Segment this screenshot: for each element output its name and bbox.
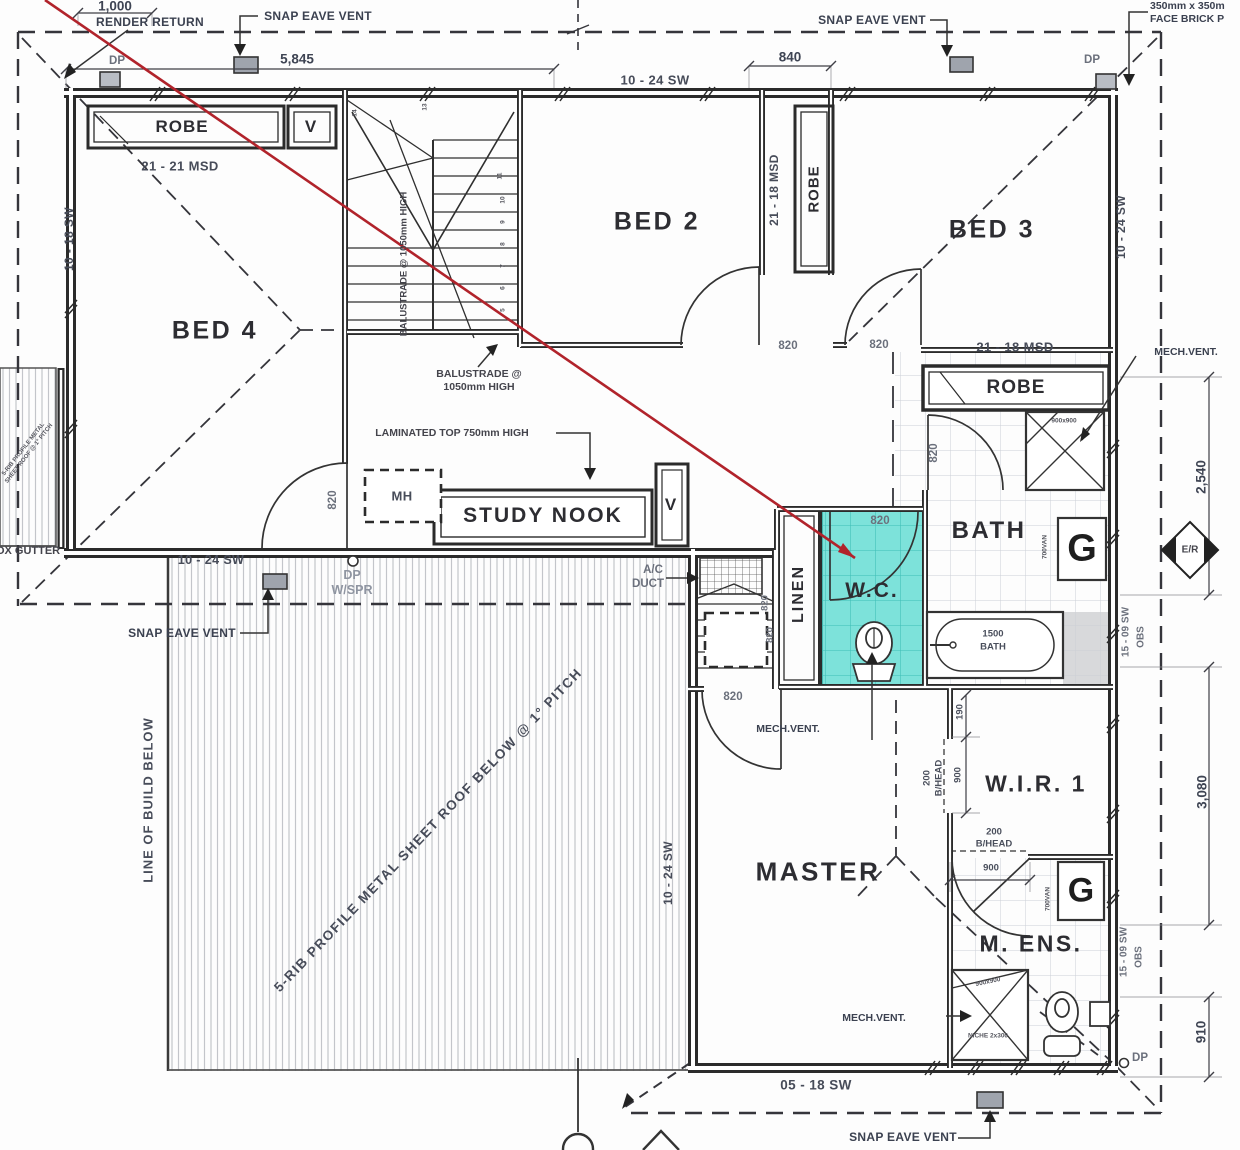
dim-910: 910	[1194, 1021, 1209, 1044]
wir1-label: W.I.R. 1	[985, 771, 1087, 798]
dim-3080: 3,080	[1195, 775, 1210, 809]
obs-label-1: OBS	[1136, 626, 1147, 648]
stair-number-6: 6	[500, 286, 507, 290]
bed4-label: BED 4	[172, 317, 258, 346]
dim-1000: 1,000	[98, 0, 132, 14]
code-15-09-sw-1: 15 - 09 SW	[1121, 607, 1132, 657]
door-820-2: 820	[869, 339, 888, 351]
stair-number-9: 9	[500, 220, 507, 224]
dp-label-2: DP	[1084, 54, 1100, 66]
stair-number-14: 14	[352, 109, 359, 116]
niche-label: NICHE 2x300	[968, 1033, 1008, 1040]
bed2-label: BED 2	[614, 208, 700, 237]
ac-duct-label: DUCT	[632, 578, 664, 590]
code-10-24-sw-right: 10 - 24 SW	[1114, 195, 1128, 259]
face-brick-note-line2: FACE BRICK P	[1150, 13, 1224, 25]
code-05-18-sw: 05 - 18 SW	[780, 1078, 852, 1093]
bhead-label-v: B/HEAD	[934, 760, 945, 796]
balustrade-label-line2: 1050mm HIGH	[443, 381, 514, 393]
shower-size-label-1: 900x900	[1051, 418, 1076, 425]
snap-eave-vent-label-1: SNAP EAVE VENT	[264, 9, 372, 23]
centerline-symbols	[563, 1058, 679, 1150]
stair-number-7: 7	[500, 264, 507, 268]
code-15-09-sw-2: 15 - 09 SW	[1119, 927, 1130, 977]
snap-eave-vent-label-3: SNAP EAVE VENT	[128, 626, 236, 640]
box-gutter-label: BOX GUTTER	[0, 545, 60, 557]
er-marker-label: E/R	[1182, 545, 1199, 556]
robe-label-3: ROBE	[987, 377, 1046, 399]
code-10-24-sw-master: 10 - 24 SW	[661, 841, 675, 905]
code-21-18-msd-h: 21 - 18 MSD	[976, 340, 1053, 355]
mech-vent-label-2: MECH.VENT.	[756, 723, 820, 735]
stair-number-11: 11	[497, 173, 504, 180]
door-820-1: 820	[778, 340, 797, 352]
bed3-label: BED 3	[949, 216, 1035, 245]
door-820-3: 820	[327, 490, 339, 509]
snap-eave-vent-label-2: SNAP EAVE VENT	[818, 13, 926, 27]
dim-2540: 2,540	[1194, 460, 1209, 494]
door-820-8: 820	[723, 691, 742, 703]
dim-200-v: 200	[922, 770, 933, 786]
robe-label-2: ROBE	[806, 165, 823, 212]
dim-840: 840	[779, 50, 802, 65]
obs-label-2: OBS	[1134, 946, 1145, 968]
face-brick-note-line1: 350mm x 350m	[1150, 0, 1225, 12]
mech-vent-label-1: MECH.VENT.	[1154, 346, 1218, 358]
mens-label: M. ENS.	[979, 931, 1082, 958]
line-of-build-label: LINE OF BUILD BELOW	[141, 717, 156, 883]
robe-label-1: ROBE	[155, 117, 208, 137]
ac-label: A/C	[643, 564, 663, 576]
door-820-5: 820	[870, 515, 889, 527]
dp-label-1: DP	[109, 55, 125, 67]
tub-size-label: 1500	[982, 629, 1003, 640]
tub-word-label: BATH	[980, 642, 1006, 653]
dim-900-v: 900	[953, 767, 964, 783]
dp-wspr-label: W/SPR	[332, 583, 373, 597]
balustrade-label-line1: BALUSTRADE @	[436, 368, 522, 380]
balustrade-side-label: BALUSTRADE @ 1050mm HIGH	[399, 192, 410, 336]
red-marker-arrow	[45, 0, 855, 558]
mech-vent-label-3: MECH.VENT.	[842, 1012, 906, 1024]
code-21-21-msd: 21 - 21 MSD	[141, 159, 218, 174]
vanity-width-label-2: 700VAN	[1045, 887, 1052, 911]
code-10-24-sw-mid: 10 - 24 SW	[178, 553, 245, 567]
vanity-basin-icon-2: G	[1068, 872, 1094, 911]
master-label: MASTER	[756, 857, 881, 888]
dim-5845: 5,845	[280, 52, 314, 67]
vent-label-1: V	[305, 117, 317, 137]
stair-number-5: 5	[500, 308, 507, 312]
toilet-wc-icon	[853, 622, 895, 681]
ac-duct-box	[700, 558, 762, 594]
linen-label: LINEN	[790, 565, 808, 623]
render-return-label: RENDER RETURN	[96, 15, 204, 29]
stair-number-8: 8	[500, 242, 507, 246]
dp-label-4: DP	[1132, 1052, 1148, 1064]
dim-200-h: 200	[986, 827, 1002, 838]
bhead-label-h: B/HEAD	[976, 839, 1012, 850]
floor-plan: 1,000 RENDER RETURN SNAP EAVE VENT SNAP …	[0, 0, 1240, 1150]
stair-number-10: 10	[500, 196, 507, 203]
mh-label-1: MH	[391, 489, 412, 504]
snap-eave-vent-label-4: SNAP EAVE VENT	[849, 1130, 957, 1144]
vanity-basin-icon-1: G	[1067, 528, 1097, 571]
vanity-width-label-1: 700VAN	[1042, 535, 1049, 559]
door-820-7: 820	[765, 627, 776, 643]
code-21-18-msd-vert: 21 - 18 MSD	[767, 154, 781, 226]
code-10-18-sw-left: 10 - 18 SW	[62, 207, 76, 271]
study-nook-label: STUDY NOOK	[463, 504, 623, 528]
door-820-6: 820	[760, 595, 771, 611]
door-820-4: 820	[928, 443, 940, 462]
window-code-10-24-sw-top: 10 - 24 SW	[620, 73, 689, 88]
stair-number-13: 13	[422, 103, 429, 110]
bath-label: BATH	[952, 517, 1027, 545]
vent-label-2: V	[665, 495, 677, 515]
wc-label: W.C.	[845, 579, 899, 603]
dim-900-h: 900	[983, 863, 999, 874]
dim-190: 190	[955, 704, 966, 720]
laminated-top-label: LAMINATED TOP 750mm HIGH	[375, 427, 528, 439]
dp-label-3: DP	[343, 568, 360, 582]
